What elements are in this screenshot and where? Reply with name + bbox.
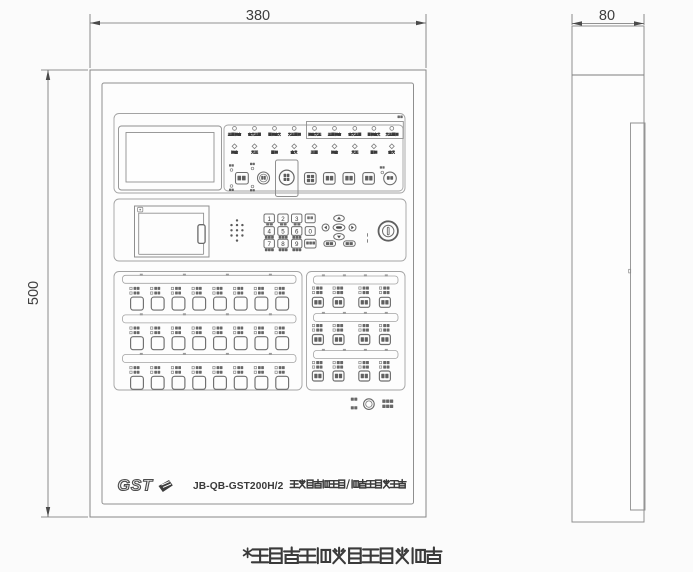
svg-text:7: 7	[267, 241, 271, 248]
svg-text:380: 380	[246, 8, 270, 24]
svg-text:80: 80	[599, 8, 615, 24]
svg-text:JB-QB-GST200H/2: JB-QB-GST200H/2	[193, 481, 284, 492]
svg-text:8: 8	[281, 241, 285, 248]
svg-text:2: 2	[281, 216, 285, 223]
svg-text:0: 0	[308, 229, 312, 236]
svg-text:9: 9	[295, 241, 299, 248]
svg-text:6: 6	[295, 229, 299, 236]
svg-text:1: 1	[267, 216, 271, 223]
svg-text:GST: GST	[118, 478, 154, 495]
svg-text:500: 500	[26, 281, 42, 305]
svg-text:4: 4	[267, 229, 271, 236]
svg-text:3: 3	[295, 216, 299, 223]
svg-text:5: 5	[281, 229, 285, 236]
